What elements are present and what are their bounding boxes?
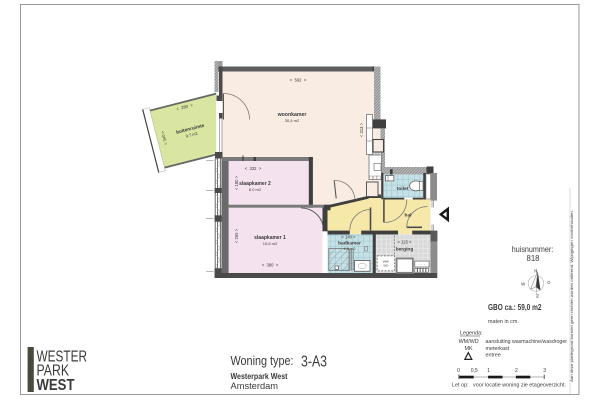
svg-text:2: 2 — [515, 368, 518, 374]
svg-text:hal: hal — [405, 213, 412, 219]
svg-text:30,4 m2: 30,4 m2 — [285, 118, 300, 123]
svg-text:< 180 >: < 180 > — [234, 175, 239, 190]
svg-text:Amsterdam: Amsterdam — [231, 381, 279, 391]
svg-text:0,5: 0,5 — [471, 368, 478, 374]
svg-text:entree: entree — [486, 353, 501, 359]
svg-text:W: W — [521, 281, 526, 286]
svg-text:< 140 >: < 140 > — [341, 235, 356, 240]
svg-text:Aan deze plattegrond kunnen ge: Aan deze plattegrond kunnen geen rechten… — [570, 210, 574, 382]
svg-text:MK: MK — [465, 346, 473, 352]
svg-text:< 332 >: < 332 > — [245, 166, 262, 171]
svg-text:Let op: voor locatie woning: Let op: voor locatie woning zie etageove… — [452, 383, 566, 389]
svg-text:< 592 >: < 592 > — [290, 78, 307, 83]
svg-text:berging: berging — [396, 247, 414, 253]
svg-text:WD: WD — [383, 263, 389, 267]
svg-text:GBO ca.: 59,0 m2: GBO ca.: 59,0 m2 — [488, 303, 542, 312]
svg-text:WEST: WEST — [37, 377, 75, 394]
svg-text:Woning type:: Woning type: — [231, 354, 294, 368]
svg-text:10,6 m2: 10,6 m2 — [263, 241, 278, 246]
svg-text:0: 0 — [457, 368, 460, 374]
svg-text:N: N — [534, 269, 537, 274]
svg-text:aansluiting wasmachine/wasdrog: aansluiting wasmachine/wasdroger — [486, 339, 568, 345]
svg-text:6,0 m2: 6,0 m2 — [249, 187, 262, 192]
svg-text:meterkast: meterkast — [486, 346, 510, 352]
svg-text:toilet: toilet — [397, 186, 409, 192]
svg-text:huisnummer:: huisnummer: — [512, 245, 554, 254]
svg-text:Z: Z — [536, 293, 539, 298]
svg-text:< 115 >: < 115 > — [398, 240, 412, 245]
svg-text:WM/WD: WM/WD — [459, 339, 479, 345]
svg-text:4,0 m2: 4,0 m2 — [343, 246, 356, 251]
svg-text:maten in cm.: maten in cm. — [488, 319, 519, 325]
svg-text:818: 818 — [526, 254, 539, 263]
svg-text:Westerpark West: Westerpark West — [231, 372, 288, 381]
svg-text:3: 3 — [543, 368, 546, 374]
svg-text:1: 1 — [487, 368, 490, 374]
svg-text:· · ·: · · · — [419, 263, 425, 267]
svg-text:HUREN IN: HUREN IN — [27, 358, 32, 381]
svg-text:< 380 >: < 380 > — [262, 263, 279, 268]
svg-text:< 265 >: < 265 > — [234, 228, 239, 243]
svg-text:< 313 >: < 313 > — [359, 122, 364, 137]
svg-text:3-A3: 3-A3 — [301, 354, 327, 371]
svg-text:O: O — [547, 280, 551, 285]
